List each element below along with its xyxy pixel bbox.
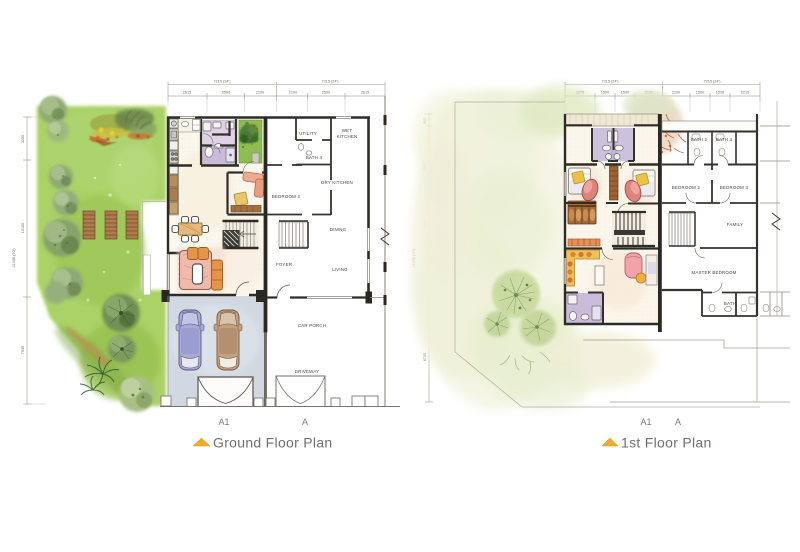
svg-text:DINING: DINING <box>330 227 347 232</box>
svg-text:BATH 4: BATH 4 <box>306 155 323 160</box>
svg-text:1500: 1500 <box>696 91 704 95</box>
svg-text:1500: 1500 <box>716 91 724 95</box>
svg-text:21335 (70'): 21335 (70') <box>12 248 16 268</box>
svg-text:10100: 10100 <box>21 223 25 234</box>
svg-text:MASTER BEDROOM: MASTER BEDROOM <box>691 270 736 275</box>
svg-text:2100: 2100 <box>289 91 297 95</box>
svg-text:7215 (24'): 7215 (24') <box>322 80 340 84</box>
svg-text:FOYER: FOYER <box>276 262 292 267</box>
svg-text:2615: 2615 <box>183 91 191 95</box>
svg-text:7215 (24'): 7215 (24') <box>214 80 232 84</box>
svg-text:2100: 2100 <box>256 91 264 95</box>
svg-text:WET: WET <box>342 128 352 133</box>
svg-text:A: A <box>302 417 308 427</box>
svg-text:7215 (24'): 7215 (24') <box>602 80 620 84</box>
svg-text:2500: 2500 <box>322 91 330 95</box>
svg-text:FAMILY: FAMILY <box>727 222 744 227</box>
svg-text:6735: 6735 <box>423 353 427 361</box>
svg-text:Ground Floor Plan: Ground Floor Plan <box>213 435 333 451</box>
svg-text:1st Floor Plan: 1st Floor Plan <box>621 435 712 451</box>
svg-text:2615: 2615 <box>361 91 369 95</box>
svg-text:7935: 7935 <box>21 346 25 354</box>
svg-text:UTILITY: UTILITY <box>299 131 317 136</box>
svg-text:1500: 1500 <box>601 91 609 95</box>
svg-text:BEDROOM 4: BEDROOM 4 <box>272 194 301 199</box>
svg-text:A1: A1 <box>640 417 651 427</box>
svg-text:2215: 2215 <box>741 91 749 95</box>
svg-text:LIVING: LIVING <box>332 267 348 272</box>
svg-text:DRY KITCHEN: DRY KITCHEN <box>321 180 353 185</box>
svg-text:1500: 1500 <box>621 91 629 95</box>
svg-text:BEDROOM 2: BEDROOM 2 <box>672 185 701 190</box>
svg-text:3200: 3200 <box>21 135 25 143</box>
svg-text:CAR PORCH: CAR PORCH <box>298 323 326 328</box>
svg-text:2100: 2100 <box>672 91 680 95</box>
svg-text:A1: A1 <box>218 417 229 427</box>
svg-text:BEDROOM 3: BEDROOM 3 <box>720 185 749 190</box>
svg-text:BATH: BATH <box>724 301 736 306</box>
svg-text:7215 (24'): 7215 (24') <box>704 80 722 84</box>
svg-text:KITCHEN: KITCHEN <box>337 134 358 139</box>
svg-text:2500: 2500 <box>222 91 230 95</box>
svg-text:BATH 3: BATH 3 <box>716 137 733 142</box>
svg-text:DRIVEWAY: DRIVEWAY <box>295 369 320 374</box>
svg-text:BATH 2: BATH 2 <box>691 137 708 142</box>
svg-text:A: A <box>675 417 681 427</box>
